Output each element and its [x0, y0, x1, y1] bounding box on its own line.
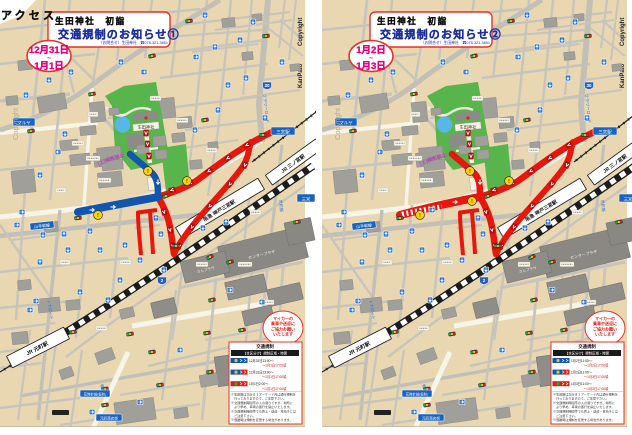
svg-text:交通規制のお知らせ②: 交通規制のお知らせ② [380, 27, 502, 41]
svg-text:（お問合せ）生田神社 ☎078-321-3851: （お問合せ）生田神社 ☎078-321-3851 [421, 40, 490, 45]
svg-text:三宮駅: 三宮駅 [276, 128, 290, 135]
svg-text:生田神社: 生田神社 [138, 124, 155, 131]
svg-text:1月2日: 1月2日 [356, 45, 386, 56]
svg-text:交通規制のお知らせ①: 交通規制のお知らせ① [58, 27, 180, 41]
svg-text:ご注意下さい。: ご注意下さい。 [553, 413, 578, 418]
svg-text:〜1月3日17:00頃: 〜1月3日17:00頃 [584, 374, 609, 379]
svg-text:Copyright: Copyright [298, 18, 304, 46]
svg-text:1月3日11:00〜: 1月3日11:00〜 [571, 382, 593, 386]
svg-text:生田神社: 生田神社 [460, 124, 477, 131]
svg-text:（お問合せ）生田神社 ☎078-321-3851: （お問合せ）生田神社 ☎078-321-3851 [99, 40, 168, 45]
svg-text:1月1日2:00〜: 1月1日2:00〜 [249, 382, 269, 386]
svg-text:交通規制: 交通規制 [256, 343, 274, 350]
svg-text:三宮: 三宮 [302, 195, 310, 202]
svg-text:Copyright: Copyright [620, 18, 626, 46]
svg-text:〜1月1日17:00頃: 〜1月1日17:00頃 [262, 386, 287, 391]
svg-text:12月31日: 12月31日 [29, 45, 69, 56]
svg-text:元町商店街: 元町商店街 [422, 415, 440, 420]
svg-text:〜1月2日17:00頃: 〜1月2日17:00頃 [584, 363, 609, 368]
svg-text:〜1月3日17:00頃: 〜1月3日17:00頃 [584, 386, 609, 391]
svg-text:※交通規制時間帯でも売上・送迎・車椅子には: ※交通規制時間帯でも売上・送迎・車椅子には [553, 409, 618, 414]
svg-text:行っておりますので、ご注意下さい。: 行っておりますので、ご注意下さい。 [553, 396, 608, 401]
svg-text:※混雑時は規制を変更する場合があります。: ※混雑時は規制を変更する場合があります。 [231, 417, 293, 422]
svg-text:1月1日: 1月1日 [34, 61, 64, 72]
svg-text:京町筋: 京町筋 [278, 199, 285, 212]
svg-text:より早め、車両の通行を禁止いたします。: より早め、車両の通行を禁止いたします。 [553, 404, 615, 409]
svg-text:いたします: いたします [273, 331, 293, 337]
svg-text:Copyright: Copyright [11, 107, 20, 140]
svg-text:アクセス: アクセス [1, 9, 57, 22]
svg-text:1月2日11:00〜: 1月2日11:00〜 [571, 371, 593, 375]
svg-text:1月3日: 1月3日 [356, 61, 386, 72]
svg-text:30: 30 [264, 83, 270, 88]
svg-text:交通規制: 交通規制 [578, 343, 596, 350]
svg-text:乗車や送迎に: 乗車や送迎に [593, 320, 617, 326]
svg-text:いたします: いたします [595, 331, 615, 337]
svg-text:ご注意下さい。: ご注意下さい。 [231, 413, 256, 418]
svg-text:マイカーの: マイカーの [273, 315, 293, 321]
svg-text:〜1月1日17:00頃: 〜1月1日17:00頃 [262, 363, 287, 368]
svg-text:【本区分け】規制区域・時間: 【本区分け】規制区域・時間 [565, 351, 610, 356]
svg-text:三宮駅: 三宮駅 [598, 128, 612, 135]
svg-text:ご協力お願い: ご協力お願い [271, 325, 295, 331]
svg-text:〜1月1日17:00頃: 〜1月1日17:00頃 [262, 374, 287, 379]
svg-text:より早め、車両の通行を禁止いたします。: より早め、車両の通行を禁止いたします。 [231, 404, 293, 409]
svg-text:京町筋: 京町筋 [600, 199, 607, 212]
svg-text:30: 30 [586, 83, 592, 88]
svg-text:三宮: 三宮 [624, 195, 632, 202]
svg-text:※交通規制時間帯の入の通りですが、場所に: ※交通規制時間帯の入の通りですが、場所に [231, 400, 293, 405]
svg-text:※混雑時は規制を変更する場合があります。: ※混雑時は規制を変更する場合があります。 [553, 417, 615, 422]
svg-text:乗車や送迎に: 乗車や送迎に [271, 320, 295, 326]
svg-text:1月2日11:00〜: 1月2日11:00〜 [571, 359, 593, 363]
svg-text:行っておりますので、ご注意下さい。: 行っておりますので、ご注意下さい。 [231, 396, 286, 401]
svg-text:※交通規制時間帯でも売上・送迎・車椅子には: ※交通規制時間帯でも売上・送迎・車椅子には [231, 409, 296, 414]
svg-text:※生田筋は北行き１アーケード内は通行規制を: ※生田筋は北行き１アーケード内は通行規制を [553, 391, 618, 396]
svg-text:ご協力お願い: ご協力お願い [593, 325, 617, 331]
svg-text:12月31日23:00〜: 12月31日23:00〜 [249, 359, 274, 363]
svg-text:生田神社 初詣: 生田神社 初詣 [377, 16, 448, 26]
svg-text:生田神社 初詣: 生田神社 初詣 [55, 16, 126, 26]
svg-text:※交通規制時間帯の入の通りですが、場所に: ※交通規制時間帯の入の通りですが、場所に [553, 400, 615, 405]
svg-text:12月31日23:00〜: 12月31日23:00〜 [249, 371, 274, 375]
svg-text:Copyright: Copyright [333, 107, 342, 140]
svg-text:元町商店街: 元町商店街 [100, 415, 118, 420]
svg-text:マイカーの: マイカーの [595, 315, 615, 321]
svg-text:※生田筋は北行き１アーケード内は通行規制を: ※生田筋は北行き１アーケード内は通行規制を [231, 391, 296, 396]
svg-text:【本区分け】規制区域・時間: 【本区分け】規制区域・時間 [243, 351, 288, 356]
